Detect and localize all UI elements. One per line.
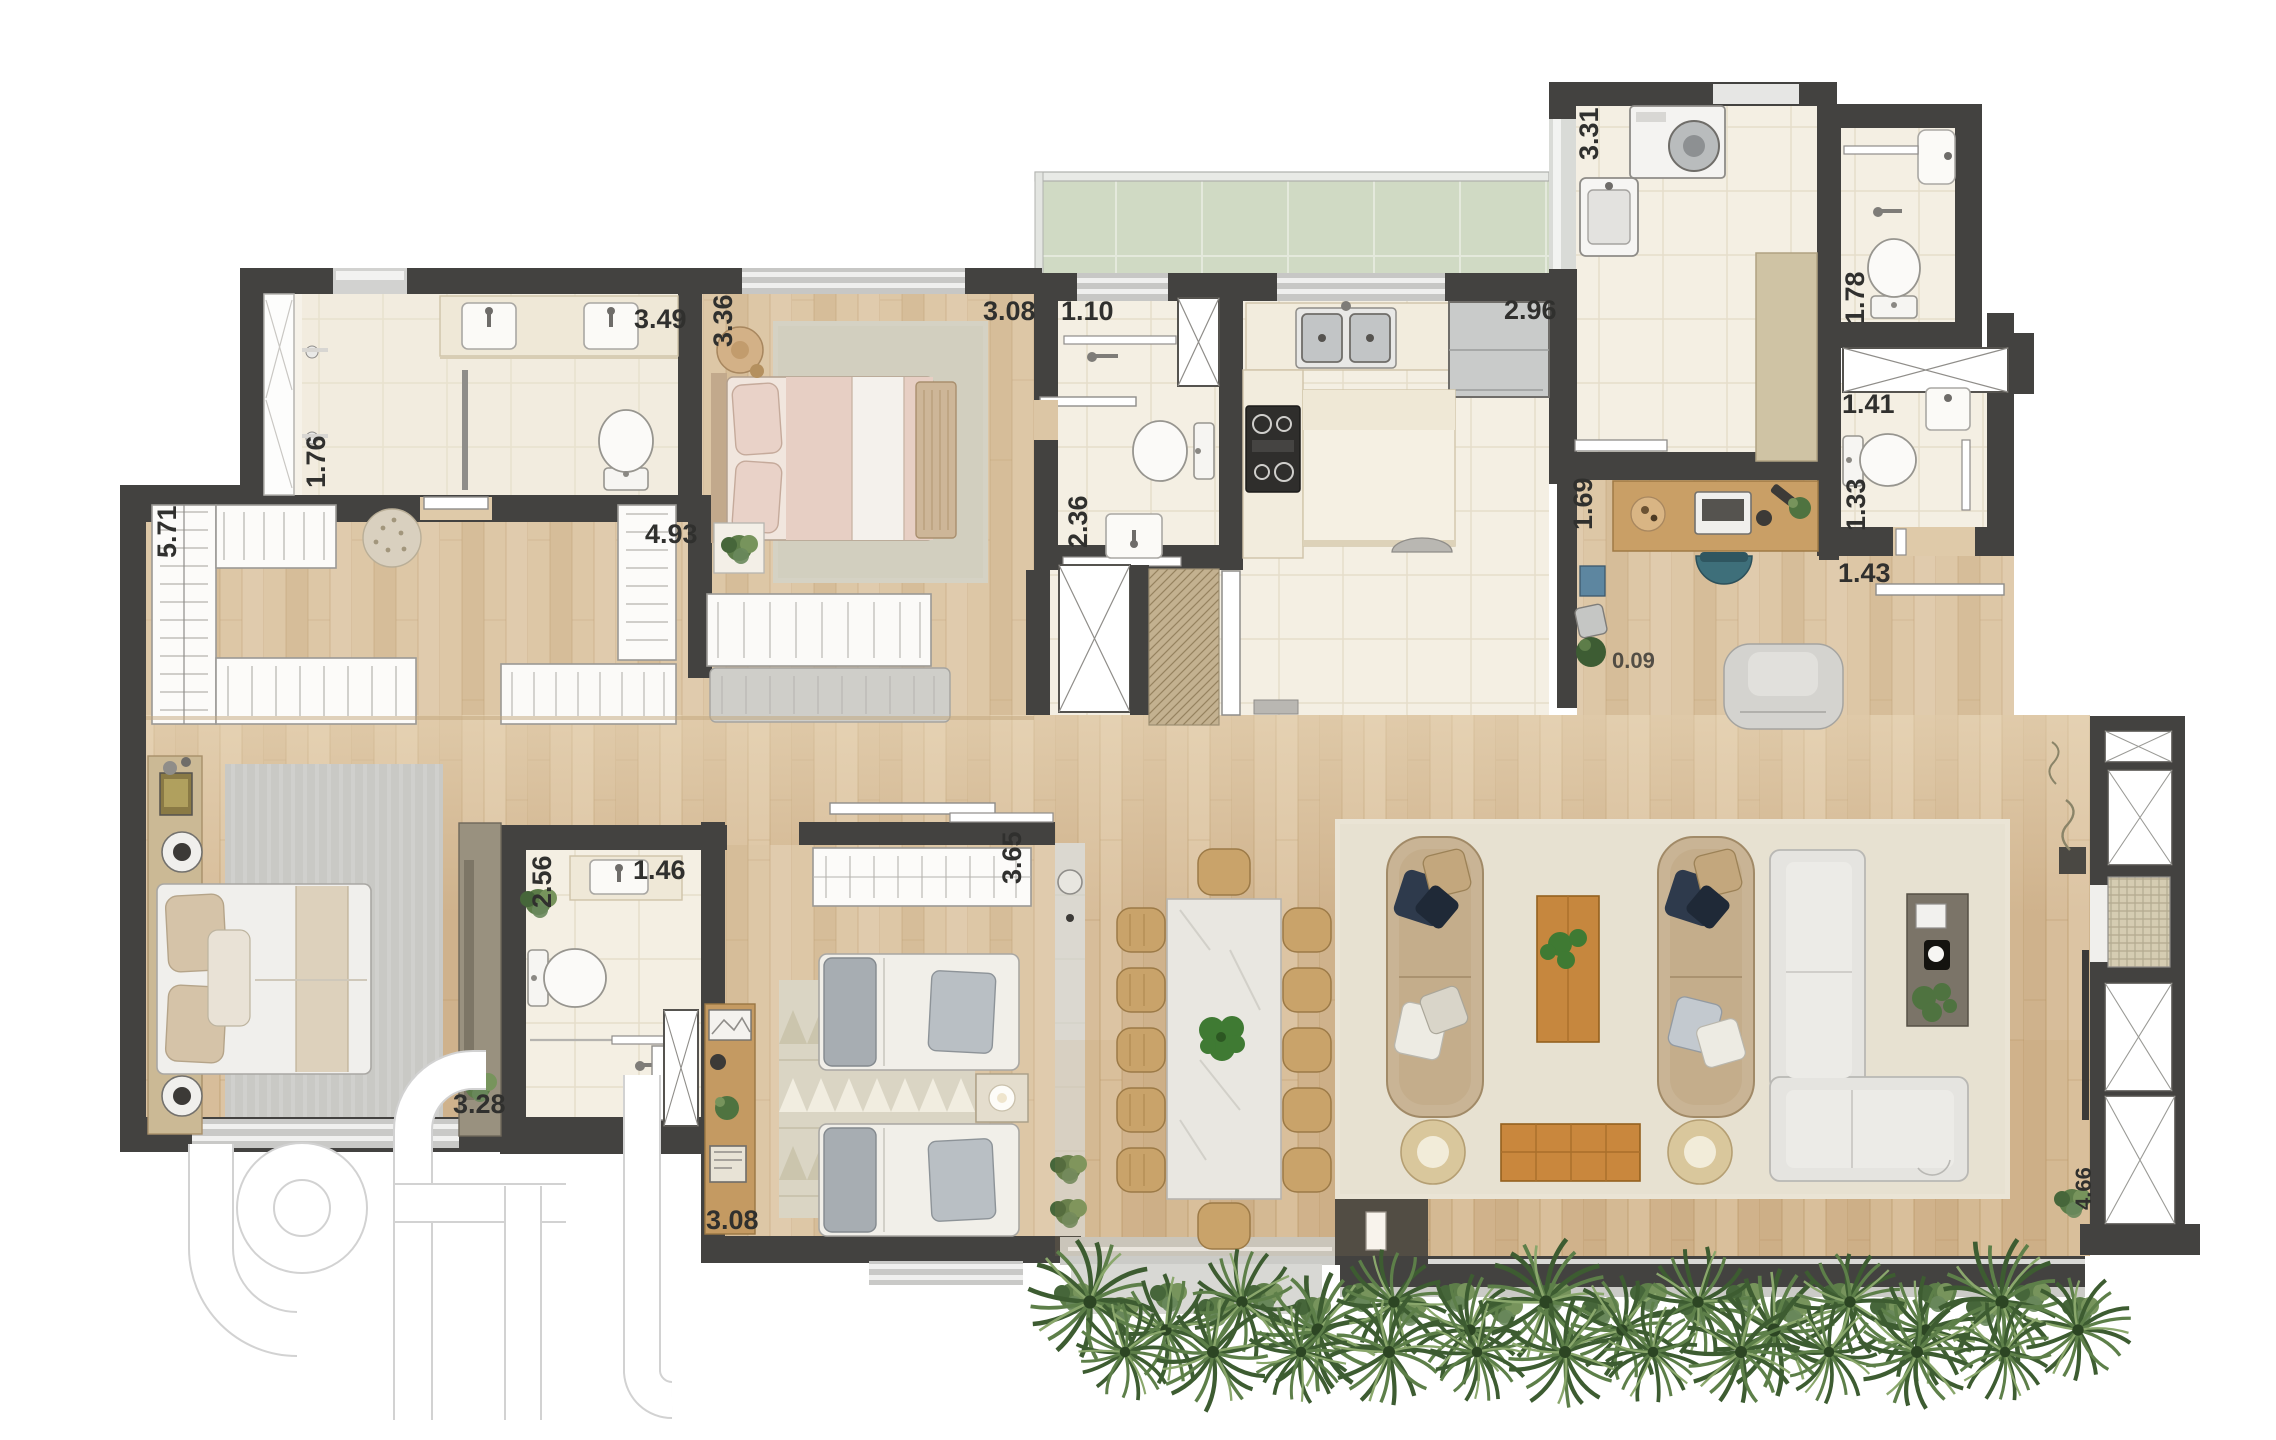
svg-text:0.09: 0.09 [1612, 648, 1655, 673]
svg-text:1.76: 1.76 [301, 435, 331, 488]
svg-text:3.36: 3.36 [708, 294, 738, 347]
svg-text:1.46: 1.46 [633, 855, 686, 885]
svg-text:4.66: 4.66 [2071, 1167, 2096, 1210]
svg-text:3.31: 3.31 [1574, 107, 1604, 160]
svg-text:1.41: 1.41 [1842, 389, 1895, 419]
svg-text:1.69: 1.69 [1568, 477, 1598, 530]
svg-text:3.08: 3.08 [983, 296, 1036, 326]
svg-text:2.96: 2.96 [1504, 295, 1557, 325]
svg-text:2.36: 2.36 [1063, 495, 1093, 548]
svg-text:1.43: 1.43 [1838, 558, 1891, 588]
svg-text:3.28: 3.28 [453, 1089, 506, 1119]
svg-text:1.33: 1.33 [1841, 478, 1871, 531]
svg-text:3.49: 3.49 [634, 304, 687, 334]
svg-text:3.65: 3.65 [997, 831, 1027, 884]
svg-text:3.08: 3.08 [706, 1205, 759, 1235]
svg-text:1.10: 1.10 [1061, 296, 1114, 326]
svg-text:2.56: 2.56 [527, 855, 557, 908]
svg-text:1.78: 1.78 [1840, 271, 1870, 324]
svg-text:5.71: 5.71 [152, 505, 182, 558]
svg-text:4.93: 4.93 [645, 519, 698, 549]
